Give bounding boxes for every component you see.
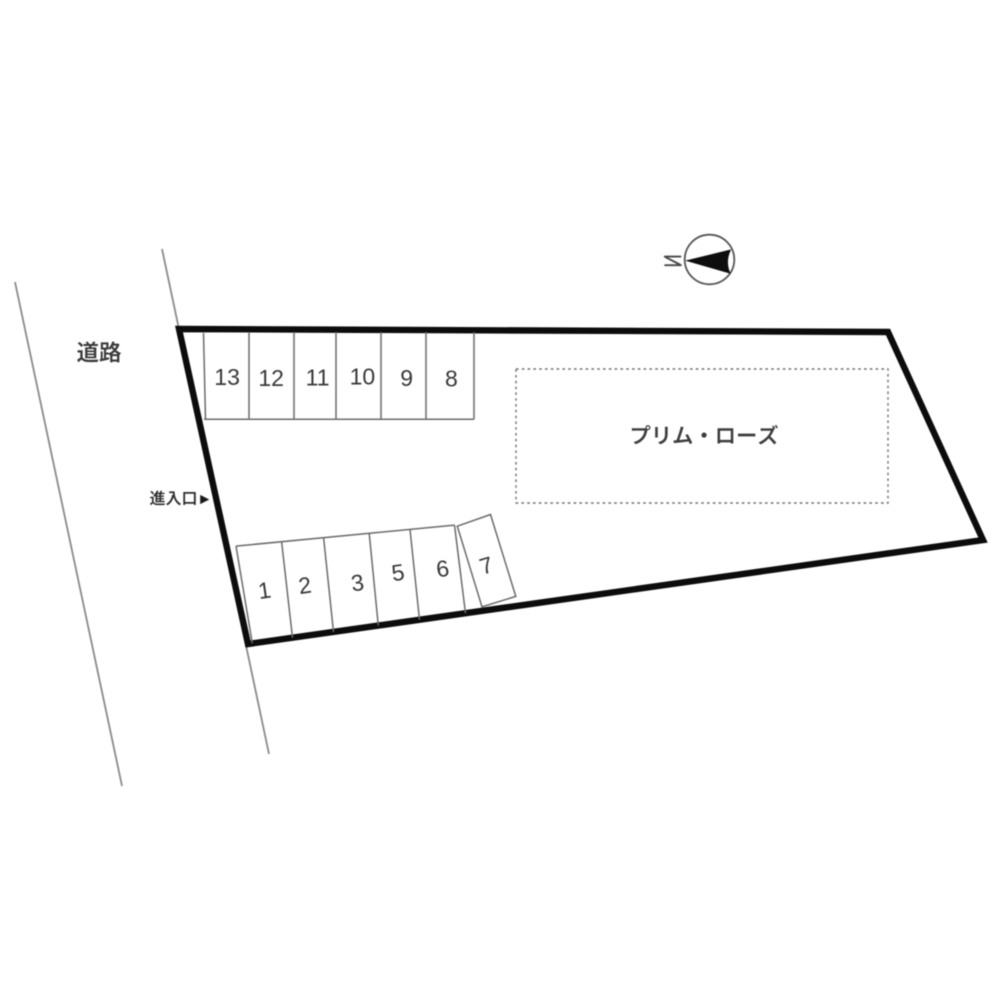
- svg-text:9: 9: [400, 365, 413, 391]
- svg-text:8: 8: [445, 366, 458, 392]
- svg-text:13: 13: [214, 364, 240, 390]
- svg-text:10: 10: [350, 363, 376, 389]
- svg-text:11: 11: [306, 364, 330, 390]
- svg-text:12: 12: [258, 365, 284, 391]
